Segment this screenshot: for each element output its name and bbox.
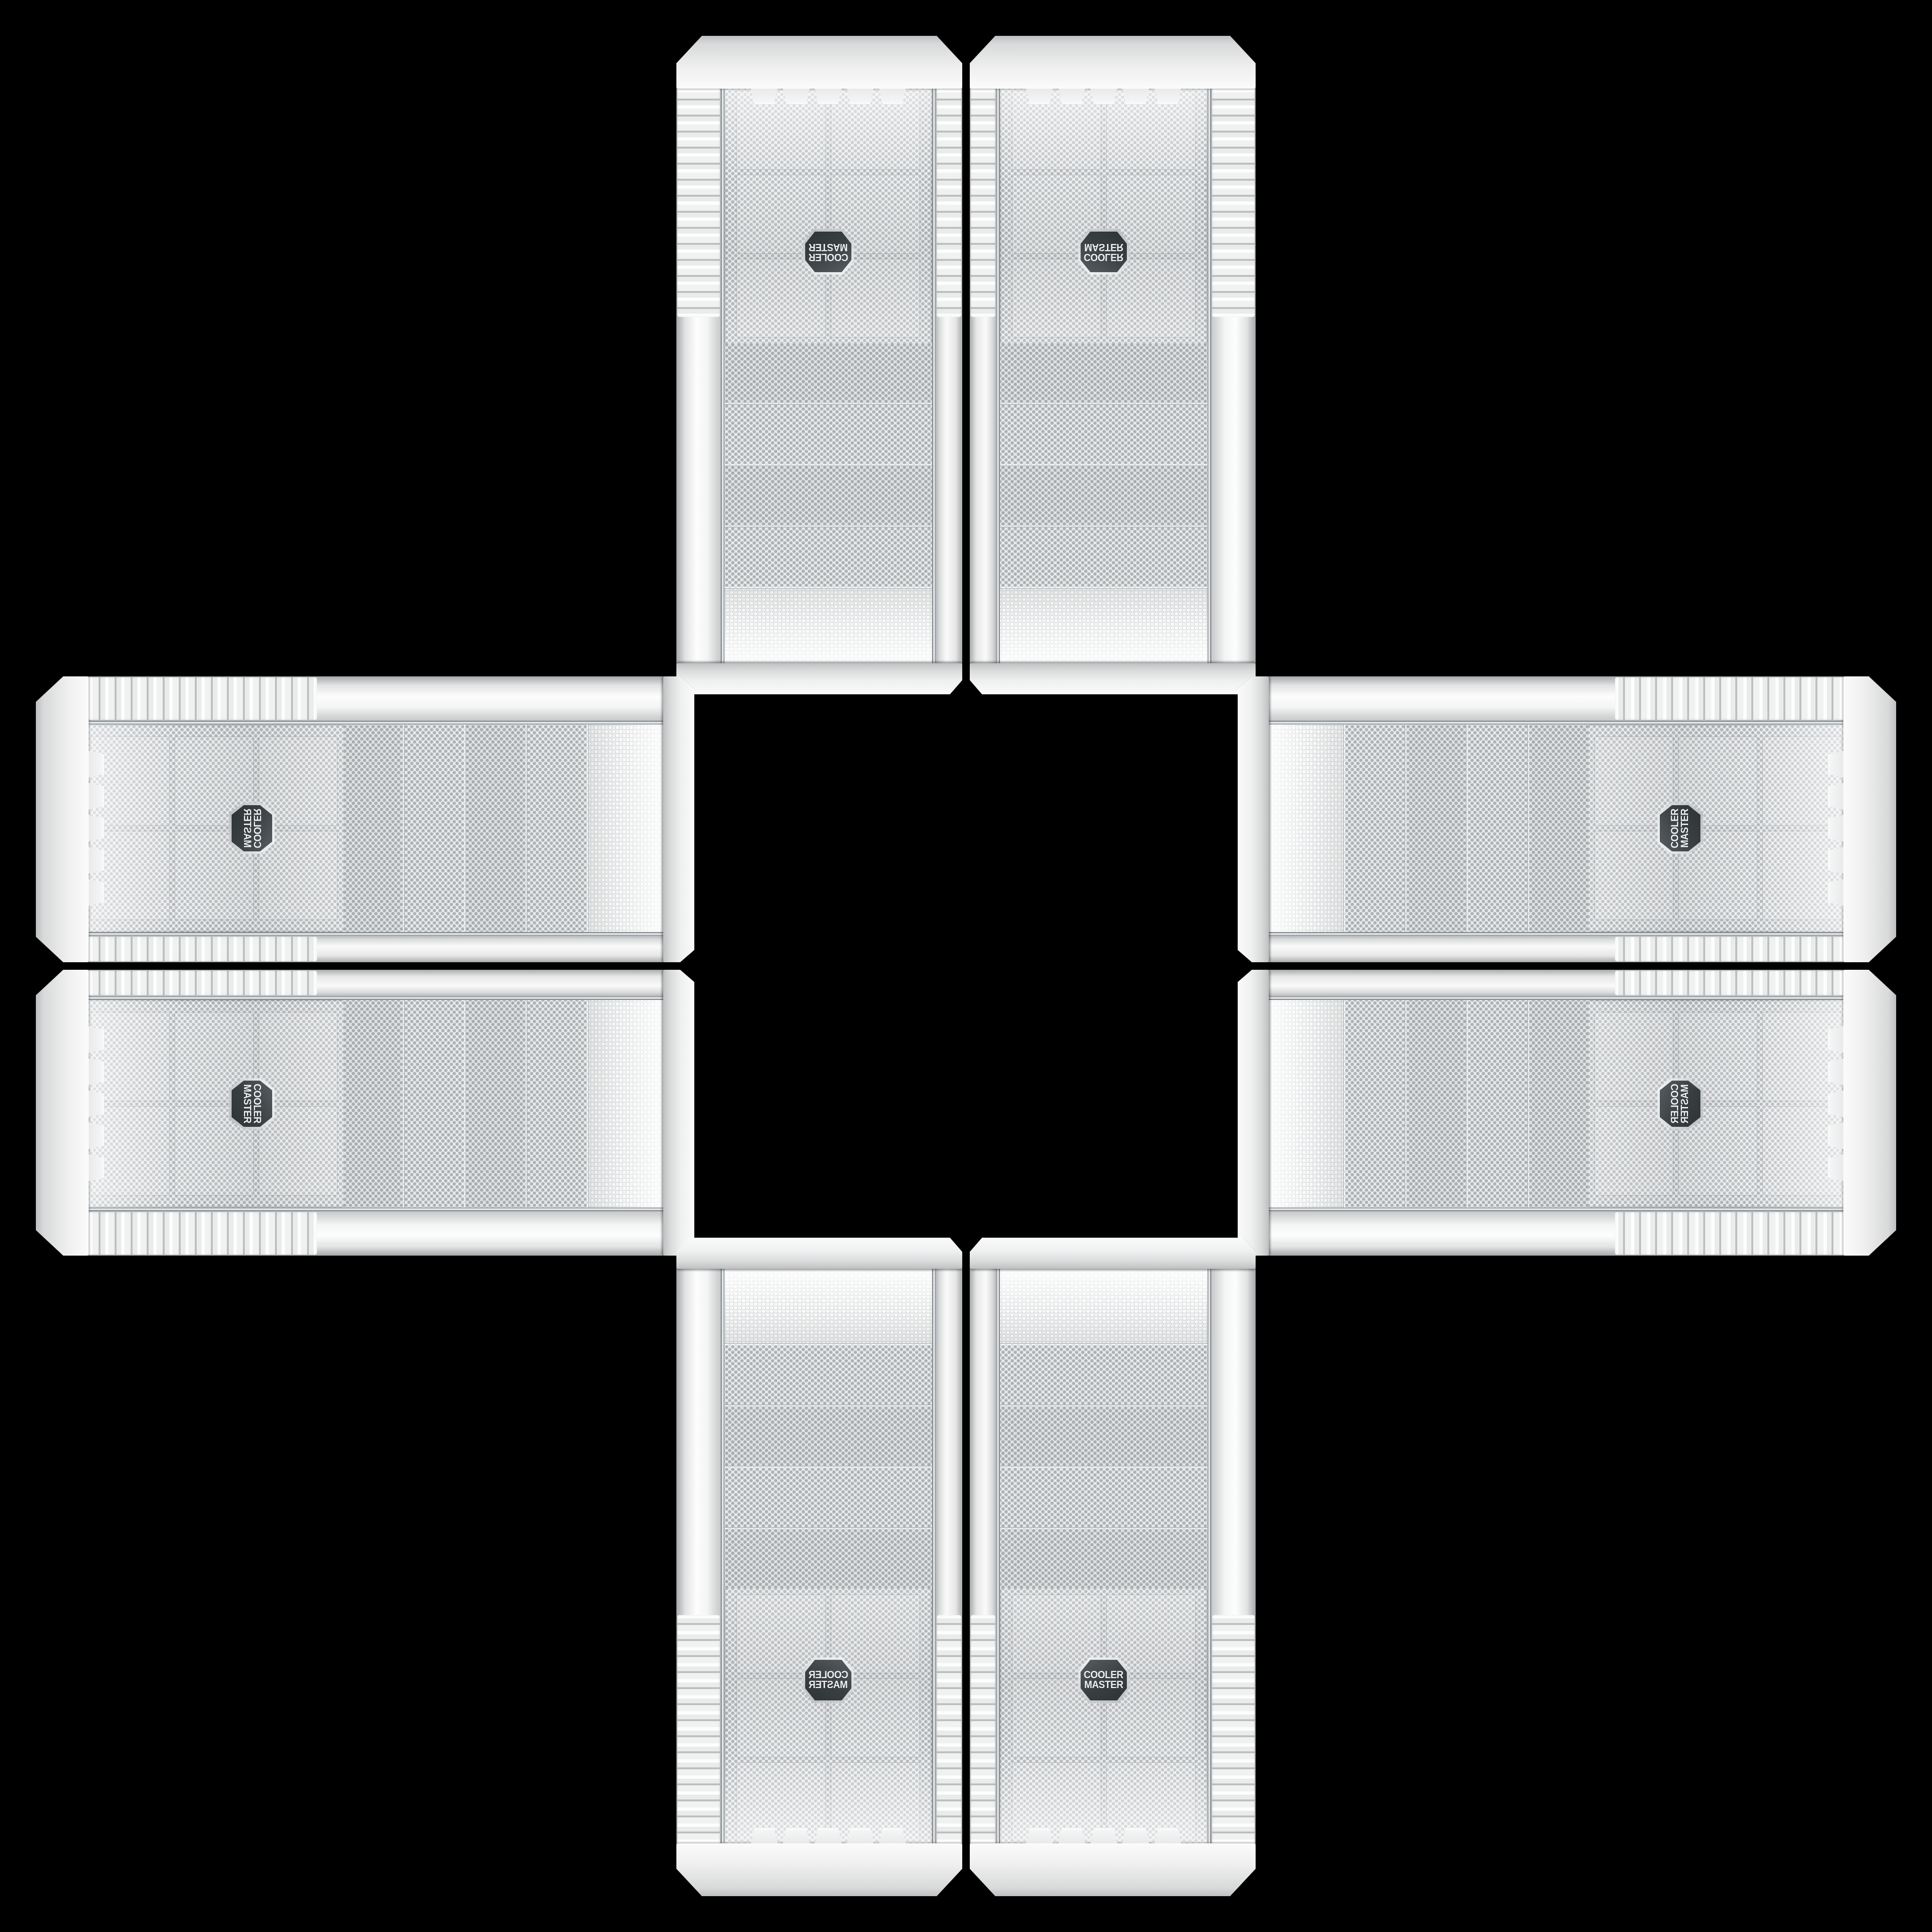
- drive-bay-strip: [1000, 1466, 1207, 1527]
- rail-grip-ribs: [937, 66, 961, 317]
- badge-face: COOLER MASTER: [232, 805, 272, 851]
- drive-bay-strip: [1343, 724, 1405, 932]
- bottom-cap-tab: [89, 879, 104, 906]
- drive-bay-strips: [1000, 343, 1207, 589]
- side-rail-wide: [676, 65, 721, 675]
- rail-grip-ribs: [971, 1615, 995, 1866]
- case-front-panel-right-bottom: COOLER MASTER: [1238, 970, 1896, 1256]
- vent-curve-section: [1269, 1000, 1344, 1207]
- top-cap: [663, 676, 694, 962]
- rail-grip-ribs: [66, 677, 317, 720]
- vent-curve-section: [724, 1269, 932, 1344]
- chrome-trim: [996, 67, 1000, 663]
- side-rail-narrow: [65, 936, 675, 962]
- chrome-trim: [996, 1269, 1000, 1865]
- bottom-cap-tab: [847, 1828, 874, 1843]
- side-rail-narrow: [970, 1257, 996, 1867]
- drive-bay-strips: [343, 1000, 589, 1207]
- drive-bay-strip: [1000, 405, 1207, 466]
- badge-brand-line1: COOLER: [808, 252, 848, 262]
- drive-bay-strips: [724, 1343, 932, 1589]
- top-cap: [676, 1238, 962, 1269]
- front-mesh-panel: COOLER MASTER: [724, 75, 932, 663]
- bottom-cap-tab: [879, 89, 906, 104]
- drive-bay-strip: [724, 343, 932, 405]
- bottom-cap-tab: [1026, 89, 1053, 104]
- top-cap: [970, 1238, 1256, 1269]
- bottom-cap-tab: [1828, 783, 1843, 809]
- badge-brand-line1: COOLER: [252, 808, 262, 848]
- chrome-trim: [1207, 67, 1211, 663]
- cooler-master-badge: COOLER MASTER: [1657, 803, 1703, 854]
- badge-face: COOLER MASTER: [1660, 805, 1700, 851]
- front-mesh-panel: COOLER MASTER: [1000, 75, 1207, 663]
- drive-bay-strip: [1000, 1527, 1207, 1589]
- badge-brand-line2: MASTER: [1680, 1084, 1690, 1124]
- drive-bay-strip: [1000, 466, 1207, 527]
- mesh-light-gradient: [724, 1589, 932, 1857]
- front-mesh-panel: COOLER MASTER: [1269, 724, 1857, 932]
- badge-face: COOLER MASTER: [1081, 1660, 1127, 1700]
- bottom-cap-tab: [1828, 1123, 1843, 1149]
- case-front-panel-right-top: COOLER MASTER: [1238, 676, 1896, 962]
- front-mesh-panel: COOLER MASTER: [1000, 1269, 1207, 1857]
- badge-brand-line2: MASTER: [1084, 242, 1124, 252]
- bottom-cap: [36, 970, 89, 1256]
- side-rail-wide: [65, 1211, 675, 1256]
- drive-bay-strip: [1405, 1000, 1466, 1207]
- cooler-master-badge: COOLER MASTER: [229, 1078, 275, 1129]
- side-rail-wide: [1211, 65, 1256, 675]
- mesh-light-gradient: [1589, 1000, 1857, 1207]
- cooler-master-badge: COOLER MASTER: [1657, 1078, 1703, 1129]
- cooler-master-badge: COOLER MASTER: [229, 803, 275, 854]
- badge-face: COOLER MASTER: [1660, 1081, 1700, 1127]
- case-front-panel-top-right: COOLER MASTER: [970, 36, 1256, 694]
- bottom-cap-tab: [1828, 879, 1843, 906]
- bottom-cap: [970, 36, 1256, 89]
- drive-bay-strip: [343, 1000, 405, 1207]
- vent-curve-section: [1000, 1269, 1207, 1344]
- bottom-cap: [676, 36, 962, 89]
- chrome-trim: [1269, 721, 1865, 724]
- bottom-cap-tab: [879, 1828, 906, 1843]
- vent-curve-section: [1000, 588, 1207, 663]
- side-rail-wide: [676, 1257, 721, 1867]
- top-cap: [676, 663, 962, 694]
- bottom-cap-tab: [1828, 1058, 1843, 1085]
- front-mesh-panel: COOLER MASTER: [1269, 1000, 1857, 1207]
- rail-grip-ribs: [971, 66, 995, 317]
- drive-bay-strip: [405, 1000, 466, 1207]
- drive-bay-strips: [724, 343, 932, 589]
- rail-grip-ribs: [1615, 677, 1866, 720]
- bottom-cap-tabs: [1828, 751, 1843, 906]
- badge-face: COOLER MASTER: [805, 232, 851, 272]
- badge-brand-line2: MASTER: [1680, 809, 1690, 848]
- bottom-cap-tab: [89, 1026, 104, 1053]
- rail-grip-ribs: [1615, 971, 1866, 995]
- cooler-master-badge: COOLER MASTER: [1078, 229, 1129, 275]
- bottom-cap-tabs: [751, 89, 906, 104]
- side-rail-wide: [1257, 1211, 1867, 1256]
- side-rail-narrow: [936, 65, 962, 675]
- chrome-trim: [67, 932, 663, 936]
- drive-bay-strip: [1466, 724, 1527, 932]
- lower-mesh-section: COOLER MASTER: [1000, 75, 1207, 343]
- cooler-master-badge: COOLER MASTER: [1078, 1657, 1129, 1703]
- drive-bay-strip: [724, 405, 932, 466]
- side-rail-wide: [65, 676, 675, 721]
- rail-grip-ribs: [66, 937, 317, 961]
- chrome-trim: [721, 1269, 724, 1865]
- bottom-cap-tab: [1058, 89, 1085, 104]
- top-cap: [1238, 676, 1269, 962]
- lower-mesh-section: COOLER MASTER: [75, 724, 343, 932]
- bottom-cap-tab: [1828, 751, 1843, 777]
- chrome-trim: [932, 67, 936, 663]
- vent-curve-section: [588, 724, 663, 932]
- drive-bay-strips: [1000, 1343, 1207, 1589]
- bottom-cap: [1843, 676, 1896, 962]
- bottom-cap: [676, 1843, 962, 1896]
- bottom-cap-tab: [751, 89, 777, 104]
- side-rail-narrow: [1257, 970, 1867, 996]
- drive-bay-strip: [1343, 1000, 1405, 1207]
- drive-bay-strip: [724, 1343, 932, 1405]
- bottom-cap-tab: [815, 89, 841, 104]
- top-cap: [970, 663, 1256, 694]
- badge-brand-line1: COOLER: [1084, 252, 1124, 262]
- side-rail-wide: [1257, 676, 1867, 721]
- bottom-cap-tab: [783, 1828, 809, 1843]
- side-rail-narrow: [1257, 936, 1867, 962]
- drive-bay-strip: [1000, 1405, 1207, 1466]
- badge-face: COOLER MASTER: [232, 1081, 272, 1127]
- bottom-cap: [970, 1843, 1256, 1896]
- bottom-cap-tab: [1091, 1828, 1117, 1843]
- cooler-master-badge: COOLER MASTER: [803, 229, 854, 275]
- drive-bay-strip: [405, 724, 466, 932]
- drive-bay-strips: [343, 724, 589, 932]
- mesh-light-gradient: [724, 75, 932, 343]
- drive-bay-strip: [1000, 343, 1207, 405]
- drive-bay-strip: [1527, 1000, 1589, 1207]
- drive-bay-strip: [1000, 527, 1207, 589]
- bottom-cap-tab: [1026, 1828, 1053, 1843]
- drive-bay-strip: [724, 1466, 932, 1527]
- drive-bay-strip: [724, 527, 932, 589]
- drive-bay-strips: [1343, 724, 1589, 932]
- vent-curve-section: [588, 1000, 663, 1207]
- cooler-master-badge: COOLER MASTER: [803, 1657, 854, 1703]
- vent-curve-section: [724, 588, 932, 663]
- badge-brand-line2: MASTER: [1084, 1680, 1124, 1690]
- front-mesh-panel: COOLER MASTER: [724, 1269, 932, 1857]
- drive-bay-strip: [527, 1000, 589, 1207]
- rail-grip-ribs: [677, 66, 720, 317]
- bottom-cap-tab: [89, 1091, 104, 1117]
- rail-grip-ribs: [677, 1615, 720, 1866]
- lower-mesh-section: COOLER MASTER: [75, 1000, 343, 1207]
- drive-bay-strip: [1405, 724, 1466, 932]
- drive-bay-strip: [724, 466, 932, 527]
- bottom-cap-tab: [89, 1058, 104, 1085]
- side-rail-wide: [1211, 1257, 1256, 1867]
- product-collage: COOLER MASTER: [0, 0, 1932, 1932]
- chrome-trim: [1269, 932, 1865, 936]
- mesh-light-gradient: [75, 724, 343, 932]
- bottom-cap-tabs: [89, 751, 104, 906]
- case-front-panel-bottom-right: COOLER MASTER: [970, 1238, 1256, 1896]
- lower-mesh-section: COOLER MASTER: [724, 75, 932, 343]
- badge-brand-line2: MASTER: [242, 809, 252, 848]
- mesh-light-gradient: [75, 1000, 343, 1207]
- bottom-cap: [36, 676, 89, 962]
- bottom-cap-tabs: [751, 1828, 906, 1843]
- lower-mesh-section: COOLER MASTER: [1589, 724, 1857, 932]
- lower-mesh-section: COOLER MASTER: [1589, 1000, 1857, 1207]
- badge-face: COOLER MASTER: [1081, 232, 1127, 272]
- mesh-light-gradient: [1000, 1589, 1207, 1857]
- bottom-cap-tab: [751, 1828, 777, 1843]
- chrome-trim: [1269, 1207, 1865, 1211]
- chrome-trim: [1207, 1269, 1211, 1865]
- case-front-panel-bottom-left: COOLER MASTER: [676, 1238, 962, 1896]
- drive-bay-strips: [1343, 1000, 1589, 1207]
- rail-grip-ribs: [1212, 1615, 1255, 1866]
- bottom-cap-tab: [1828, 815, 1843, 841]
- drive-bay-strip: [1466, 1000, 1527, 1207]
- chrome-trim: [1269, 996, 1865, 1000]
- bottom-cap-tabs: [89, 1026, 104, 1181]
- side-rail-narrow: [970, 65, 996, 675]
- top-cap: [663, 970, 694, 1256]
- drive-bay-strip: [527, 724, 589, 932]
- drive-bay-strip: [466, 1000, 527, 1207]
- case-front-panel-left-bottom: COOLER MASTER: [36, 970, 694, 1256]
- drive-bay-strip: [343, 724, 405, 932]
- front-mesh-panel: COOLER MASTER: [75, 724, 663, 932]
- bottom-cap-tab: [1155, 1828, 1181, 1843]
- side-rail-narrow: [65, 970, 675, 996]
- bottom-cap-tab: [783, 89, 809, 104]
- badge-face: COOLER MASTER: [805, 1660, 851, 1700]
- bottom-cap-tab: [1828, 847, 1843, 874]
- badge-brand-line1: COOLER: [252, 1084, 262, 1124]
- bottom-cap-tabs: [1026, 1828, 1181, 1843]
- vent-curve-section: [1269, 724, 1344, 932]
- badge-brand-line2: MASTER: [809, 1680, 848, 1690]
- drive-bay-strip: [1000, 1343, 1207, 1405]
- badge-brand-line2: MASTER: [242, 1084, 252, 1124]
- rail-grip-ribs: [1212, 66, 1255, 317]
- drive-bay-strip: [724, 1527, 932, 1589]
- bottom-cap-tab: [1155, 89, 1181, 104]
- bottom-cap-tab: [89, 751, 104, 777]
- lower-mesh-section: COOLER MASTER: [1000, 1589, 1207, 1857]
- chrome-trim: [67, 721, 663, 724]
- chrome-trim: [67, 996, 663, 1000]
- bottom-cap-tab: [1123, 1828, 1149, 1843]
- bottom-cap-tab: [815, 1828, 841, 1843]
- bottom-cap-tab: [89, 1155, 104, 1181]
- mesh-light-gradient: [1589, 724, 1857, 932]
- rail-grip-ribs: [1615, 937, 1866, 961]
- drive-bay-strip: [1527, 724, 1589, 932]
- rail-grip-ribs: [66, 1212, 317, 1255]
- case-front-panel-left-top: COOLER MASTER: [36, 676, 694, 962]
- bottom-cap: [1843, 970, 1896, 1256]
- rail-grip-ribs: [937, 1615, 961, 1866]
- bottom-cap-tabs: [1026, 89, 1181, 104]
- bottom-cap-tab: [847, 89, 874, 104]
- badge-brand-line2: MASTER: [809, 242, 848, 252]
- bottom-cap-tab: [89, 1123, 104, 1149]
- bottom-cap-tab: [89, 847, 104, 874]
- bottom-cap-tab: [89, 783, 104, 809]
- bottom-cap-tab: [1123, 89, 1149, 104]
- bottom-cap-tab: [1091, 89, 1117, 104]
- lower-mesh-section: COOLER MASTER: [724, 1589, 932, 1857]
- chrome-trim: [721, 67, 724, 663]
- chrome-trim: [67, 1207, 663, 1211]
- drive-bay-strip: [724, 1405, 932, 1466]
- bottom-cap-tab: [1828, 1155, 1843, 1181]
- rail-grip-ribs: [66, 971, 317, 995]
- bottom-cap-tab: [1828, 1026, 1843, 1053]
- bottom-cap-tabs: [1828, 1026, 1843, 1181]
- bottom-cap-tab: [1828, 1091, 1843, 1117]
- bottom-cap-tab: [89, 815, 104, 841]
- case-front-panel-top-left: COOLER MASTER: [676, 36, 962, 694]
- chrome-trim: [932, 1269, 936, 1865]
- side-rail-narrow: [936, 1257, 962, 1867]
- front-mesh-panel: COOLER MASTER: [75, 1000, 663, 1207]
- mesh-light-gradient: [1000, 75, 1207, 343]
- top-cap: [1238, 970, 1269, 1256]
- drive-bay-strip: [466, 724, 527, 932]
- rail-grip-ribs: [1615, 1212, 1866, 1255]
- bottom-cap-tab: [1058, 1828, 1085, 1843]
